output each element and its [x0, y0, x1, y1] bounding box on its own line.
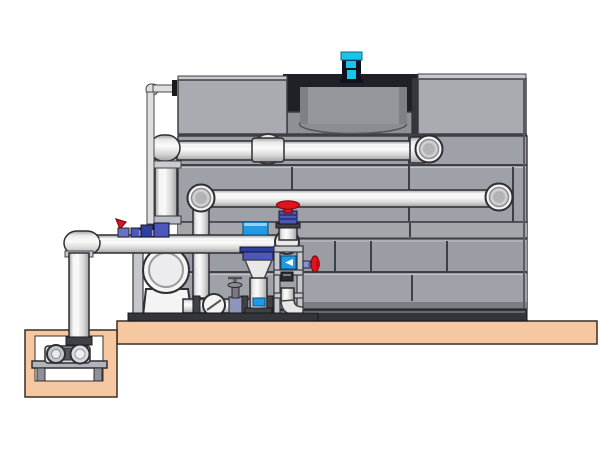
drain-fitting: [131, 228, 140, 237]
tank-top-left-panel: [178, 80, 287, 134]
foundation-slab: [117, 321, 597, 344]
red-handwheel: [277, 201, 300, 209]
skid-base: [128, 313, 318, 321]
sump-riser: [69, 253, 89, 342]
fan-motor: [340, 52, 363, 83]
junction-box: [281, 272, 293, 281]
motor-cap: [341, 52, 362, 60]
outlet-adapter-valve: [154, 223, 169, 237]
riser-flange: [66, 337, 92, 345]
tank-top-right-panel: [418, 79, 526, 134]
mini-ball-valve: [118, 228, 129, 237]
pipe-coupling: [252, 138, 284, 162]
foundation: [25, 321, 597, 397]
gate-valve-wheel: [228, 283, 242, 288]
skid-post: [133, 246, 143, 316]
valve-tag: [253, 298, 265, 306]
stand-leg: [94, 368, 102, 381]
red-handwheel-valve: [277, 201, 300, 224]
stand-leg: [37, 368, 45, 381]
drain-valve: [141, 225, 153, 237]
fan-shroud: [300, 84, 407, 124]
valve-actuator: [243, 252, 273, 260]
diagram-canvas: [0, 0, 600, 450]
overflow-flange: [172, 80, 177, 96]
cooling-tower-diagram: [0, 0, 600, 450]
